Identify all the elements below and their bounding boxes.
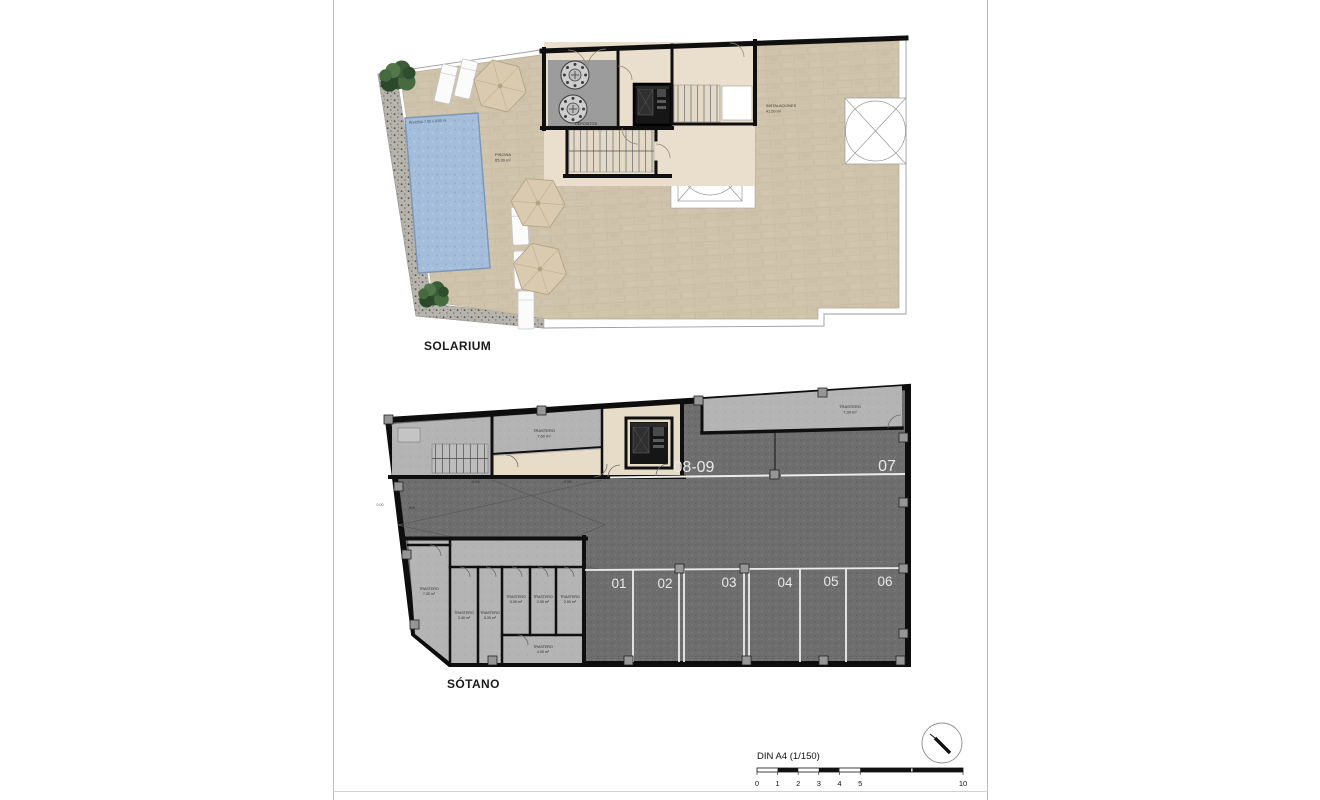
- scale-bar: 0 1 2 3 4 5 10: [755, 768, 967, 788]
- sotano-plan: -0.05 -0.05 6% 0.00 TRASTERO 7.60 m²: [372, 382, 917, 684]
- trastero-730-right: [702, 386, 902, 433]
- svg-text:6%: 6%: [409, 505, 415, 510]
- stairs: [674, 85, 752, 122]
- svg-text:4: 4: [837, 779, 841, 788]
- sheet-edge-right: [987, 0, 988, 800]
- svg-text:-0.05: -0.05: [470, 479, 480, 484]
- svg-text:PISCINA: PISCINA: [495, 152, 511, 157]
- sun-lounger: [518, 291, 534, 329]
- parking-spot-0809: 08-09: [674, 459, 715, 476]
- drawing-sheet: PISCINA 7.00 x 3.00 m. PISCINA 65.30 m² …: [0, 0, 1320, 800]
- plant-icon: [379, 61, 415, 92]
- svg-text:TRASTERO: TRASTERO: [506, 595, 526, 599]
- depositos-label: DEPOSITOS: [575, 122, 598, 126]
- svg-text:4.05 m²: 4.05 m²: [537, 650, 550, 654]
- pool-area-label: PISCINA 65.30 m²: [495, 152, 511, 163]
- svg-text:7.60 m²: 7.60 m²: [537, 434, 551, 439]
- svg-text:5.30 m²: 5.30 m²: [484, 616, 497, 620]
- parking-spot-04: 04: [777, 575, 793, 590]
- svg-text:TRASTERO: TRASTERO: [419, 587, 439, 591]
- solarium-plan: PISCINA 7.00 x 3.00 m. PISCINA 65.30 m² …: [372, 28, 912, 350]
- svg-text:7.30 m²: 7.30 m²: [423, 592, 436, 596]
- solarium-title: SOLARIUM: [424, 339, 491, 353]
- svg-text:TRASTERO: TRASTERO: [839, 404, 861, 409]
- svg-text:TRASTERO: TRASTERO: [560, 595, 580, 599]
- svg-text:1: 1: [776, 779, 780, 788]
- svg-text:INSTALACIONES: INSTALACIONES: [766, 104, 797, 108]
- svg-text:41.59 m²: 41.59 m²: [766, 110, 782, 114]
- water-tank-icon: [561, 61, 589, 89]
- svg-text:3: 3: [817, 779, 821, 788]
- svg-text:2: 2: [796, 779, 800, 788]
- elevator: [634, 84, 671, 125]
- svg-text:0.00: 0.00: [377, 503, 384, 507]
- scale-ticks: 0 1 2 3 4 5 10: [755, 779, 967, 788]
- sheet-edge-left: [333, 0, 334, 800]
- svg-text:TRASTERO: TRASTERO: [533, 645, 553, 649]
- footer-graphics: DIN A4 (1/150) 0 1 2 3 4 5 10: [745, 715, 990, 793]
- stairs: [569, 130, 654, 172]
- svg-text:TRASTERO: TRASTERO: [533, 595, 553, 599]
- water-tank-icon: [559, 95, 587, 123]
- svg-text:7.30 m²: 7.30 m²: [843, 410, 857, 415]
- elevator: [626, 418, 672, 468]
- svg-text:TRASTERO: TRASTERO: [480, 611, 500, 615]
- svg-text:-0.05: -0.05: [562, 479, 572, 484]
- svg-text:5: 5: [858, 779, 862, 788]
- svg-text:2.95 m²: 2.95 m²: [537, 600, 550, 604]
- scale-label: DIN A4 (1/150): [757, 751, 820, 762]
- svg-text:10: 10: [959, 779, 967, 788]
- svg-text:2.90 m²: 2.90 m²: [564, 600, 577, 604]
- parking-spot-01: 01: [611, 576, 626, 591]
- svg-text:3.05 m²: 3.05 m²: [510, 600, 523, 604]
- parking-spot-07: 07: [878, 458, 896, 475]
- svg-text:TRASTERO: TRASTERO: [533, 428, 555, 433]
- trastero-cluster: [408, 537, 585, 663]
- skylight-icon: [845, 98, 906, 164]
- parking-spot-05: 05: [823, 574, 838, 589]
- parking-spot-03: 03: [721, 575, 736, 590]
- pool: [405, 113, 490, 273]
- parking-spot-06: 06: [877, 574, 892, 589]
- svg-text:3.40 m²: 3.40 m²: [458, 616, 471, 620]
- svg-text:65.30 m²: 65.30 m²: [495, 158, 511, 163]
- svg-text:TRASTERO: TRASTERO: [454, 611, 474, 615]
- svg-text:0: 0: [755, 779, 759, 788]
- sotano-title: SÓTANO: [447, 677, 500, 691]
- north-arrow-icon: [922, 723, 962, 763]
- parking-spot-02: 02: [657, 576, 672, 591]
